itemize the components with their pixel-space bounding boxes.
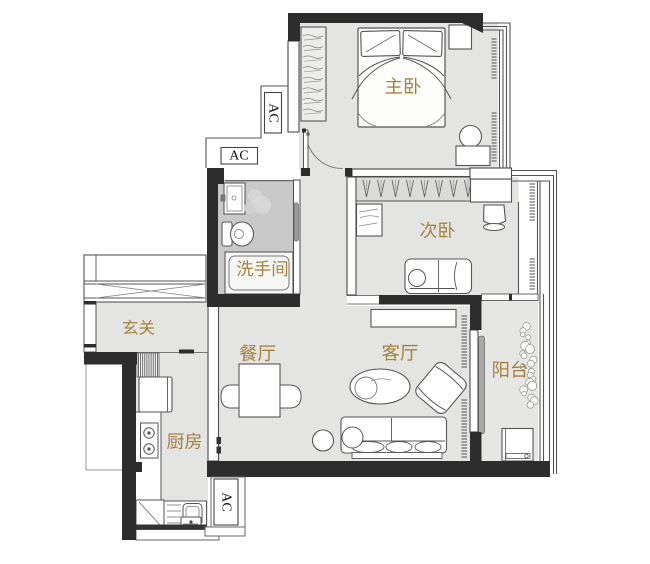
svg-text:AC: AC — [229, 149, 248, 164]
svg-text:AC: AC — [266, 103, 281, 122]
svg-text:AC: AC — [219, 492, 234, 511]
